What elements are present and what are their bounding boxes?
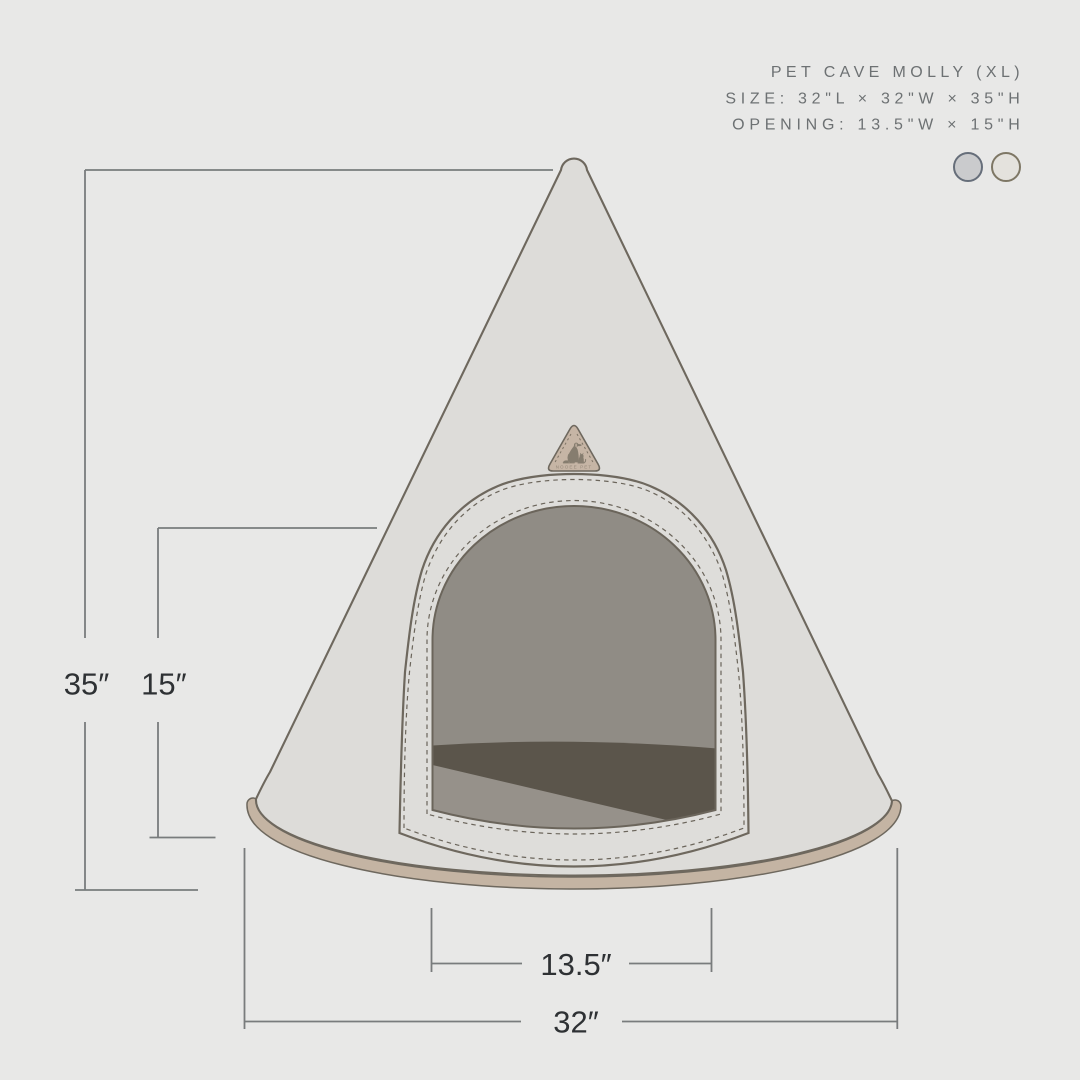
svg-text:NOOEE PET: NOOEE PET [556, 465, 593, 470]
svg-text:PET CAVE MOLLY (XL): PET CAVE MOLLY (XL) [771, 64, 1024, 81]
svg-text:15″: 15″ [141, 667, 186, 702]
svg-text:SIZE: 32"L × 32"W × 35"H: SIZE: 32"L × 32"W × 35"H [725, 91, 1024, 108]
svg-text:OPENING: 13.5"W × 15"H: OPENING: 13.5"W × 15"H [732, 117, 1024, 134]
svg-text:13.5″: 13.5″ [540, 947, 611, 982]
svg-text:35″: 35″ [64, 667, 109, 702]
svg-text:32″: 32″ [553, 1005, 598, 1040]
